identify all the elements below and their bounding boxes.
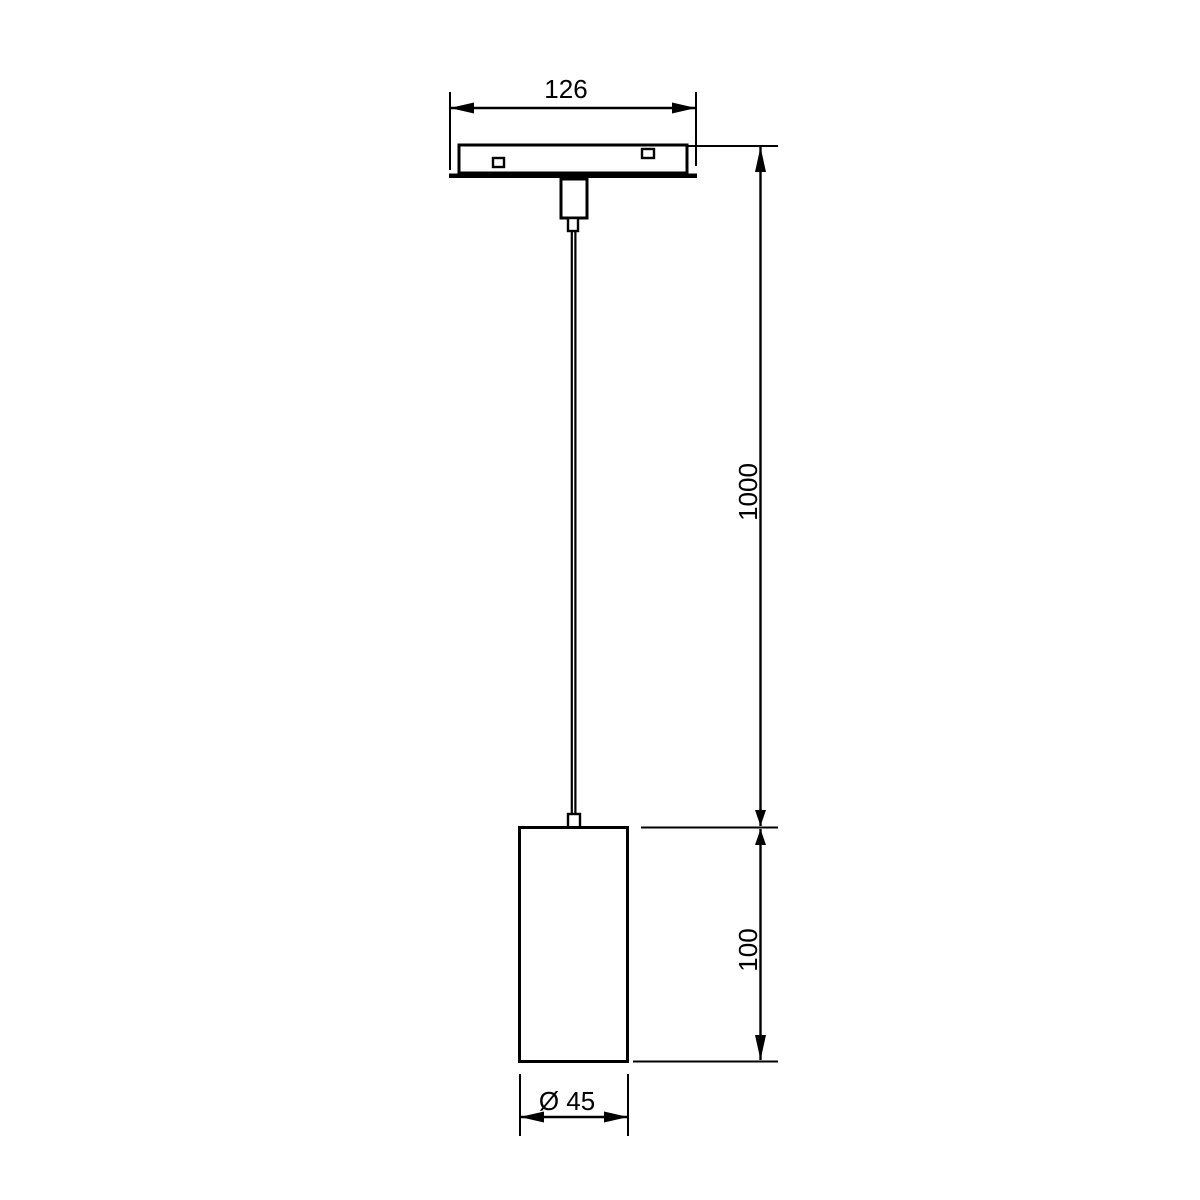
lamp-cylinder [520,828,628,1062]
connector-body [561,179,587,218]
arrowhead-up-icon [755,147,766,172]
suspension-cable [572,231,576,814]
track-adapter-hole-right [642,149,654,158]
suspension-length-label: 1000 [733,463,763,521]
arrowhead-right-icon [604,1112,628,1123]
track-adapter [449,145,697,178]
drawing-canvas: 126 [0,0,1200,1200]
arrowhead-down-icon [755,810,766,826]
track-width-label: 126 [544,74,587,104]
track-adapter-flange [449,174,697,179]
arrowhead-down-icon [755,1035,766,1060]
dimension-body-height: 100 [733,829,766,1060]
dimension-suspension-length: 1000 [733,147,766,826]
lamp-cable-gland [568,814,580,828]
right-extension-lines [633,146,778,1062]
lamp-body [520,814,628,1062]
arrowhead-up-icon [755,829,766,845]
track-adapter-hole-left [493,158,504,167]
dimension-body-diameter: Ø 45 [520,1074,628,1136]
pendant-light-technical-drawing: 126 [0,0,1200,1200]
cable-connector [561,179,587,231]
connector-nipple [568,218,578,231]
body-height-label: 100 [733,928,763,971]
body-diameter-label: Ø 45 [539,1086,595,1116]
arrowhead-left-icon [450,103,474,114]
arrowhead-right-icon [672,103,696,114]
